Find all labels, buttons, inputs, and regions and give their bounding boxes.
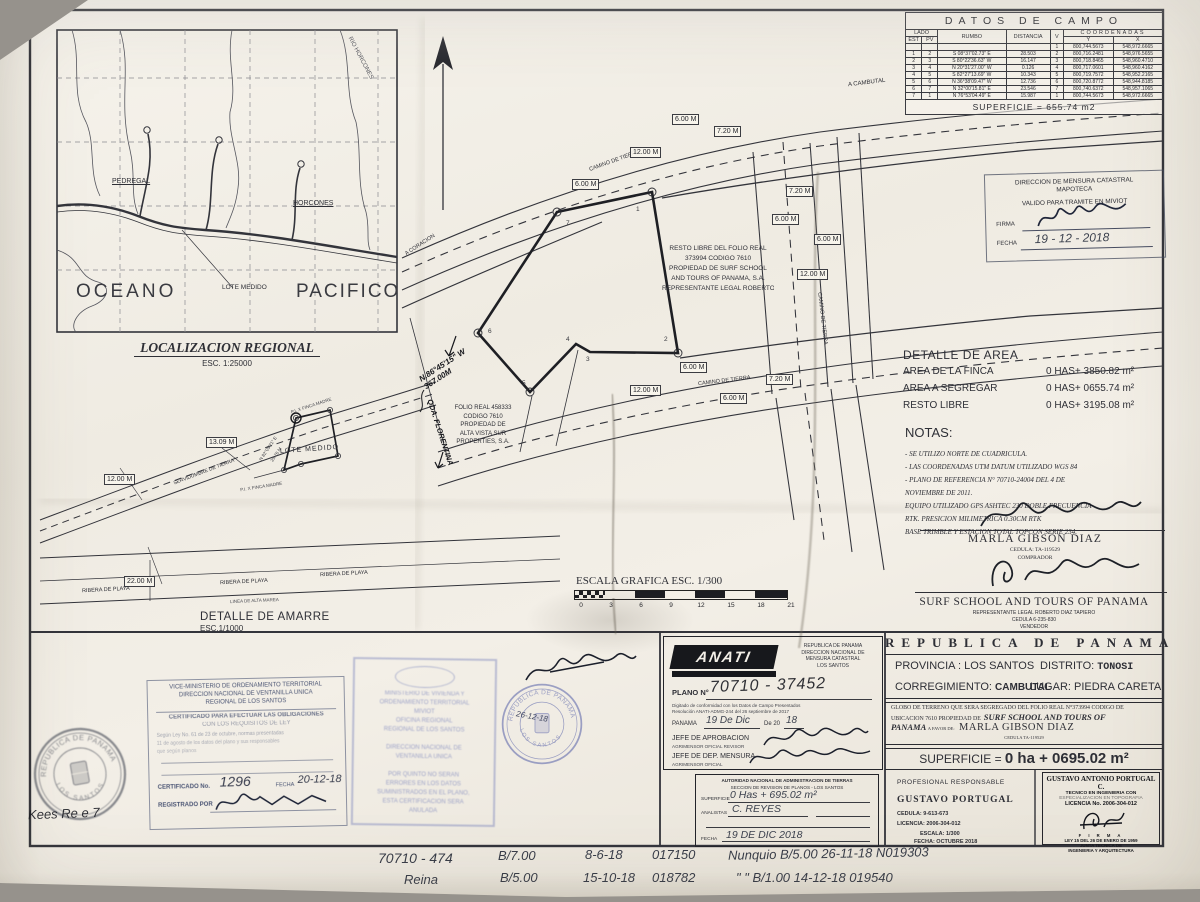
amarre-caption: DETALLE DE AMARRE [200, 611, 330, 624]
vertex-2: 2 [664, 336, 668, 343]
jefe-mensura-sub: AGRIMENSOR OFICIAL [672, 762, 723, 767]
anati-logo-icon: ANATI [669, 645, 778, 669]
hw-r1-recibo: 017150 [652, 847, 695, 862]
scale-bar [574, 590, 788, 600]
miviot-stamp-oval [395, 666, 455, 689]
amarre-servidumbre-label: SERVIDUMBRE DE TIERRA [173, 459, 235, 488]
hw-scribble-left: Kees Re e 7 [28, 805, 100, 822]
jefe-aprobacion-label: JEFE DE APROBACION [672, 735, 749, 743]
cert-registrado-label: REGISTRADO POR [158, 802, 213, 810]
cuadro-corregimiento: CORREGIMIENTO: CAMBUTAL [895, 681, 1051, 694]
vendedor-rep: REPRESENTANTE LEGAL ROBERTO DIAZ TAPIERO [903, 611, 1165, 617]
sello-l2: ESPECIALIZACION EN TOPOGRAFIA [1043, 796, 1159, 801]
prof-licencia: LICENCIA: 2006-304-012 [897, 821, 961, 827]
vertex-7: 7 [566, 220, 570, 227]
area-row-label-2: AREA A SEGREGAR [903, 383, 997, 395]
map-label-horcones: HORCONES [293, 200, 333, 208]
cert-no-label: CERTIFICADO No. [158, 784, 210, 792]
superficie-label: SUPERFICIE = [919, 752, 1001, 766]
hw-r2-monto: B/5.00 [500, 870, 538, 885]
globo-owner-bold2: PANAMA [891, 722, 926, 732]
scale-tick: 6 [626, 602, 656, 609]
col-coordenadas: COORDENADAS [1064, 30, 1163, 37]
cert-fecha-value: 20-12-18 [297, 773, 341, 786]
cuadro-divider-1 [885, 698, 1163, 703]
resto-libre-block: RESTO LIBRE DEL FOLIO REAL373994 CODIGO … [662, 244, 774, 294]
hw-r2-fecha: 15-10-18 [583, 870, 635, 885]
miviot-stamp-line: ANULADA [353, 806, 493, 817]
datos-de-campo-table: DATOS DE CAMPO LADO RUMBO DISTANCIA V CO… [905, 12, 1163, 115]
distrito-label: DISTRITO: [1040, 660, 1094, 672]
hw-r1-monto: B/7.00 [498, 848, 536, 863]
ribera-label-2: RIBERA DE PLAYA [220, 578, 268, 587]
scale-tick: 12 [686, 602, 716, 609]
revision-l1: AUTORIDAD NACIONAL DE ADMINISTRACION DE … [696, 778, 878, 783]
revision-fecha-value: 19 DE DIC 2018 [726, 829, 802, 841]
dim-box: 7.20 M [766, 374, 793, 385]
map-label-pedregal: PEDREGAL [112, 178, 150, 186]
datos-row: 12S 08°37'02.73" E 28.5032800,716.248154… [906, 51, 1163, 58]
dim-box: 6.00 M [814, 234, 841, 245]
folio-real-line: FOLIO REAL 458333 [450, 404, 516, 413]
lugar-label: LUGAR: [1030, 681, 1071, 693]
vendedor-cedula: CEDULA 6-235-830 [903, 618, 1165, 624]
escala-grafica-title: ESCALA GRAFICA ESC. 1/300 [576, 575, 722, 588]
dim-box: 6.00 M [680, 362, 707, 373]
folio-real-block: FOLIO REAL 458333CODIGO 7610PROPIEDAD DE… [450, 404, 516, 447]
plan-label-a-coracion: A CORACION [404, 233, 436, 257]
map-label-oceano: OCEANO [76, 281, 176, 303]
anati-small1: Digitado de conformidad con los Datos de… [672, 703, 800, 708]
anati-approval-block: ANATI AUTORIDAD NACIONAL DE ADMINISTRACI… [663, 636, 883, 770]
cuadro-lugar: LUGAR: PIEDRA CARETA [1030, 681, 1161, 694]
prof-cedula: CEDULA: 9-613-673 [897, 811, 948, 817]
col-y: Y [1064, 37, 1113, 44]
prof-escala: ESCALA: 1/300 [920, 831, 960, 837]
jefe-mensura-signature [746, 745, 876, 769]
scale-tick: 3 [596, 602, 626, 609]
miviot-stamp: MINISTERIO DE VIVIENDA YORDENAMIENTO TER… [351, 657, 497, 827]
miviot-stamp-text: MINISTERIO DE VIVIENDA YORDENAMIENTO TER… [353, 689, 495, 817]
vertex-5: 5 [522, 380, 526, 387]
sello-licencia: LICENCIA No. 2006-304-012 [1043, 801, 1159, 807]
col-distancia: DISTANCIA [1006, 30, 1050, 44]
photo-background: PEDREGAL HORCONES RIO HORCONES LOTE MEDI… [0, 0, 1200, 902]
comprador-rule [920, 530, 1165, 531]
hw-r1-fecha: 8-6-18 [585, 847, 623, 862]
map-label-rio-horcones: RIO HORCONES [346, 36, 374, 81]
nota-item: - SE UTILIZO NORTE DE CUADRICULA. [905, 448, 1165, 461]
vendedor-signature [985, 552, 1145, 592]
globo-favor-label: A FAVOR DE: [928, 726, 955, 731]
prof-responsable-label: PROFESIONAL RESPONSABLE [897, 779, 1005, 786]
anati-logo-text: ANATI [695, 649, 753, 666]
datos-row: 45S 82°27'13.69" W 10.3435800,719.757254… [906, 72, 1163, 79]
linea-alta-marea-label: LINEA DE ALTA MAREA [230, 597, 279, 604]
scale-bar-ticks: 036912151821 [566, 602, 806, 609]
col-pv: PV [922, 37, 938, 44]
vertex-4: 4 [566, 336, 570, 343]
sello-firma-signature [1074, 807, 1128, 833]
amarre-pi-label-2: P.I. X FINCA MADRE [240, 481, 283, 493]
anati-logo-subbar: AUTORIDAD NACIONAL DE ADMINISTRACION DE … [672, 671, 776, 677]
resto-libre-line: 373994 CODIGO 7610 [662, 254, 774, 264]
vendedor-rule [915, 592, 1167, 593]
plan-label-camino-3: CAMINO DE TIERRA [698, 375, 751, 388]
anati-small2: Resolución ANATI-ADMG-244 del 26 septiem… [672, 709, 789, 714]
resto-libre-line: RESTO LIBRE DEL FOLIO REAL [662, 244, 774, 254]
amarre-lote-label: LOTE MEDIDO [280, 444, 340, 456]
ribera-label-3: RIBERA DE PLAYA [320, 570, 368, 579]
jefe-mensura-label: JEFE DE DEP. MENSURA [672, 753, 755, 761]
scale-tick: 9 [656, 602, 686, 609]
dim-box: 6.00 M [672, 114, 699, 125]
notas-title: NOTAS: [905, 426, 952, 441]
dim-box: 12.00 M [630, 385, 661, 396]
datos-row: 23S 80°22'36.63" W 16.1473800,718.846554… [906, 58, 1163, 65]
plan-label-a-cambutal: A CAMBUTAL [848, 78, 886, 89]
folio-real-line: ALTA VISTA SUR [450, 430, 516, 439]
col-est: EST [906, 37, 922, 44]
hw-r2-recibo: 018782 [652, 870, 695, 885]
detalle-area-title: DETALLE DE AREA [903, 349, 1018, 363]
col-x: X [1113, 37, 1162, 44]
prof-nombre: GUSTAVO PORTUGAL [897, 795, 1014, 806]
cert-p3: que según planos [157, 749, 197, 756]
official-signature-over-seal [520, 648, 640, 686]
scale-tick: 21 [776, 602, 806, 609]
datos-title: DATOS DE CAMPO [906, 13, 1163, 30]
resto-libre-line: PROPIEDAD DE SURF SCHOOL [662, 264, 774, 274]
amarre-caption-scale: ESC.1/1000 [200, 624, 243, 633]
cuadro-divider-2 [885, 744, 1163, 749]
mapoteca-firma-label: FIRMA [996, 222, 1015, 229]
resto-libre-line: AND TOURS OF PANAMA, S.A. [662, 274, 774, 284]
hw-r1-plano: 70710 - 474 [378, 850, 453, 866]
regional-map-title: LOCALIZACION REGIONAL [57, 340, 397, 356]
north-arrow-icon [433, 36, 453, 210]
anati-fecha-hw: 19 De Dic [706, 715, 750, 726]
nota-item: - LAS COORDENADAS UTM DATUM UTILIZADO WG… [905, 461, 1165, 474]
vertex-1: 1 [636, 206, 640, 213]
area-row-value-3: 0 HAS+ 3195.08 m² [1046, 400, 1134, 412]
anati-right4: LOS SANTOS [790, 663, 876, 670]
hw-r1-nota: Nunquio B/5.00 26-11-18 N019303 [728, 844, 929, 863]
topografo-stamp: GUSTAVO ANTONIO PORTUGAL C. TECNICO EN I… [1042, 772, 1160, 845]
area-row-value-2: 0 HAS+ 0655.74 m² [1046, 383, 1134, 395]
provincia-label: PROVINCIA : [895, 660, 961, 672]
datos-row: 34N 20°31'27.00" W 0.1264800,717.0601548… [906, 65, 1163, 72]
mapoteca-stamp: DIRECCION DE MENSURA CATASTRAL MAPOTECA … [984, 170, 1166, 263]
dim-box: 12.00 M [797, 269, 828, 280]
dim-box: 7.20 M [786, 186, 813, 197]
sello-nombre: GUSTAVO ANTONIO PORTUGAL C. [1043, 775, 1159, 791]
dim-box: 12.00 M [104, 474, 135, 485]
hw-r2-nombre: Reina [404, 872, 438, 887]
revision-superficie-value: 0 Has + 695.02 m² [730, 789, 817, 801]
datos-row: 1800,744.5673548,972.6665 [906, 44, 1163, 51]
area-row-label-1: AREA DE LA FINCA [903, 366, 994, 378]
lot-polygon [478, 192, 678, 392]
dim-box: 7.20 M [714, 126, 741, 137]
mapoteca-signature [1034, 197, 1135, 230]
superficie-value: 0 ha + 0695.02 m² [1005, 750, 1129, 767]
anati-right-text: REPUBLICA DE PANAMA DIRECCION NACIONAL D… [790, 643, 876, 669]
cuadro-provincia: PROVINCIA : LOS SANTOS [895, 660, 1034, 673]
cuadro-pais: REPUBLICA DE PANAMA [885, 636, 1163, 651]
globo-line1: GLOBO DE TERRENO QUE SERA SEGREGADO DEL … [891, 705, 1124, 712]
globo-favor-cedula: CEDULA TA-119529 [885, 735, 1163, 740]
ribera-label-1: RIBERA DE PLAYA [82, 586, 130, 595]
dim-box: 13.09 M [206, 437, 237, 448]
folio-real-line: PROPERTIES, S.A. [450, 438, 516, 447]
scale-tick: 15 [716, 602, 746, 609]
folio-real-line: PROPIEDAD DE [450, 421, 516, 430]
anati-panama-label: PANAMA [672, 721, 697, 728]
amarre-pi-label-1: P.I. X FINCA MADRE [290, 397, 332, 415]
dim-box: 6.00 M [572, 179, 599, 190]
map-label-lote-medido: LOTE MEDIDO [222, 284, 267, 291]
col-v: V [1050, 30, 1063, 44]
dim-box: 6.00 M [772, 214, 799, 225]
revision-analistas-value: C. REYES [732, 803, 781, 815]
dim-box: 12.00 M [630, 147, 661, 158]
col-rumbo: RUMBO [938, 30, 1006, 44]
mapoteca-fecha-value: 19 - 12 - 2018 [1034, 230, 1109, 246]
amarre-lot-polygon [284, 410, 338, 470]
revision-fecha-label: FECHA [701, 837, 717, 843]
map-label-pacifico: PACIFICO [296, 281, 400, 303]
globo-owner-bold: SURF SCHOOL AND TOURS OF [984, 712, 1106, 722]
folio-real-line: CODIGO 7610 [450, 413, 516, 422]
sello-junta2: INGENIERIA Y ARQUITECTURA [1043, 848, 1159, 853]
datos-row: 56N 36°38'09.47" W 12.7366800,720.877254… [906, 79, 1163, 86]
vertex-3: 3 [586, 356, 590, 363]
comprador-nombre: MARLA GIBSON DIAZ [905, 533, 1165, 546]
revision-superficie-label: SUPERFICIE [701, 797, 730, 803]
revision-planos-block: AUTORIDAD NACIONAL DE ADMINISTRACION DE … [695, 774, 879, 847]
area-row-value-1: 0 HAS+ 3850.82 m² [1046, 366, 1134, 378]
plan-label-camino-2: CAMINO DE TIERRA [816, 292, 829, 345]
scale-tick: 0 [566, 602, 596, 609]
col-lado: LADO [906, 30, 938, 37]
provincia-value: LOS SANTOS [964, 660, 1034, 672]
datos-row: 71N 76°53'04.49" E 15.9871800,744.567354… [906, 93, 1163, 100]
cert-p2: 11 de agosto de los datos del plano y su… [157, 739, 280, 747]
vertex-6: 6 [488, 328, 492, 335]
blue-round-seal-icon: REPUBLICA DE PANAMA LOS SANTOS [500, 682, 584, 766]
vendedor-rol: VENDEDOR [903, 625, 1165, 631]
datos-row: 67N 32°00'15.81" E 23.5467800,740.637254… [906, 86, 1163, 93]
nota-item: - PLANO DE REFERENCIA N° 70710-24004 DEL… [905, 474, 1165, 487]
lugar-value: PIEDRA CARETA [1074, 681, 1161, 693]
cuadro-superficie: SUPERFICIE = 0 ha + 0695.02 m² [885, 750, 1163, 767]
datos-superficie: SUPERFICIE = 655.74 m2 [906, 100, 1163, 115]
scale-tick: 18 [746, 602, 776, 609]
ventanilla-cert-stamp: VICE-MINISTERIO DE ORDENAMIENTO TERRITOR… [146, 676, 347, 830]
dim-box: 6.00 M [720, 393, 747, 404]
corregimiento-label: CORREGIMIENTO: [895, 681, 992, 693]
hw-bearing-note: N.86°45'15" W 367.00M [417, 347, 472, 391]
comprador-signature [975, 496, 1145, 530]
cuadro-distrito: DISTRITO: TONOSI [1040, 660, 1133, 674]
distrito-value: TONOSI [1097, 662, 1133, 673]
area-row-label-3: RESTO LIBRE [903, 400, 969, 412]
resto-libre-line: REPRESENTANTE LEGAL ROBERTO DIAZ TAPIERO [662, 284, 774, 294]
mapoteca-fecha-line [1021, 246, 1153, 250]
mapoteca-fecha-label: FECHA [997, 241, 1018, 248]
regional-map-scale: ESC. 1:25000 [57, 359, 397, 368]
jefe-aprobacion-sub: AGRIMENSOR OFICIAL REVISOR [672, 744, 744, 749]
globo-favor-nombre: MARLA GIBSON DIAZ [959, 722, 1074, 733]
plano-label: PLANO N° [672, 689, 709, 698]
revision-analistas-label: ANALISTAS [701, 811, 727, 817]
plano-number-hw: 70710 - 37452 [710, 675, 827, 697]
hw-r2-nota: " " B/1.00 14-12-18 019540 [736, 870, 893, 885]
globo-line3: PANAMA A FAVOR DE: MARLA GIBSON DIAZ [891, 722, 1074, 734]
vendedor-nombre: SURF SCHOOL AND TOURS OF PANAMA [903, 596, 1165, 609]
paper-sheet: PEDREGAL HORCONES RIO HORCONES LOTE MEDI… [0, 0, 1200, 902]
